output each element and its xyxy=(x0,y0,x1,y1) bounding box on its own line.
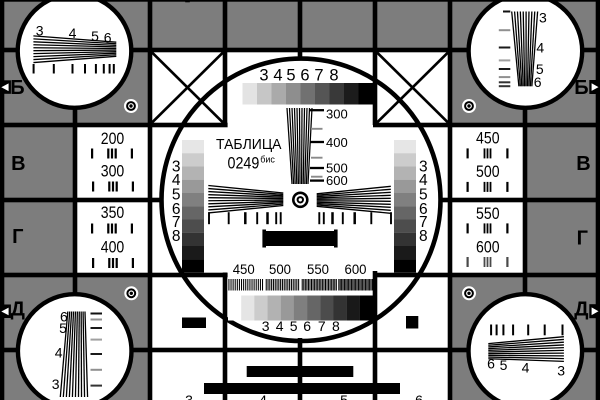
svg-text:бис: бис xyxy=(260,154,275,164)
svg-text:3: 3 xyxy=(52,376,60,392)
svg-text:Д: Д xyxy=(11,299,25,321)
svg-text:Б: Б xyxy=(10,77,24,99)
svg-text:6: 6 xyxy=(415,392,423,400)
svg-text:Д: Д xyxy=(574,299,588,321)
svg-text:350: 350 xyxy=(101,204,125,222)
svg-text:3: 3 xyxy=(185,392,193,400)
svg-text:0249: 0249 xyxy=(228,154,260,172)
svg-text:В: В xyxy=(11,153,25,175)
svg-text:Г: Г xyxy=(12,226,23,248)
svg-text:3: 3 xyxy=(557,362,565,378)
svg-text:4: 4 xyxy=(259,392,267,400)
svg-text:6: 6 xyxy=(300,67,309,85)
svg-text:3: 3 xyxy=(539,9,547,25)
svg-text:8: 8 xyxy=(419,228,428,245)
svg-text:Б: Б xyxy=(574,77,588,99)
svg-text:400: 400 xyxy=(326,135,348,150)
svg-text:550: 550 xyxy=(307,262,329,278)
svg-text:450: 450 xyxy=(233,262,255,278)
svg-text:7: 7 xyxy=(314,67,323,85)
svg-text:300: 300 xyxy=(326,106,348,121)
svg-text:8: 8 xyxy=(329,67,338,85)
svg-text:4: 4 xyxy=(273,67,282,85)
svg-text:500: 500 xyxy=(476,163,500,181)
svg-text:300: 300 xyxy=(101,163,125,181)
svg-text:450: 450 xyxy=(476,130,500,148)
svg-text:6: 6 xyxy=(303,318,311,334)
svg-text:600: 600 xyxy=(476,238,500,256)
svg-text:3: 3 xyxy=(259,67,268,85)
svg-text:7: 7 xyxy=(318,318,326,334)
svg-text:5: 5 xyxy=(340,392,348,400)
svg-text:5: 5 xyxy=(286,67,295,85)
svg-text:В: В xyxy=(576,153,590,175)
svg-text:6: 6 xyxy=(534,74,542,90)
svg-text:4: 4 xyxy=(276,318,284,334)
svg-text:500: 500 xyxy=(269,262,291,278)
svg-text:550: 550 xyxy=(476,205,500,223)
svg-text:5: 5 xyxy=(290,318,298,334)
svg-text:4: 4 xyxy=(536,40,544,56)
svg-text:600: 600 xyxy=(326,173,348,188)
svg-text:600: 600 xyxy=(345,262,367,278)
svg-text:8: 8 xyxy=(172,228,181,245)
svg-text:Г: Г xyxy=(577,227,588,249)
svg-text:8: 8 xyxy=(332,318,340,334)
svg-text:200: 200 xyxy=(101,130,125,148)
svg-text:4: 4 xyxy=(55,345,63,361)
svg-text:400: 400 xyxy=(101,239,125,257)
svg-text:ТАБЛИЦА: ТАБЛИЦА xyxy=(216,136,282,153)
svg-text:6: 6 xyxy=(487,356,495,372)
svg-text:3: 3 xyxy=(262,318,270,334)
svg-text:4: 4 xyxy=(522,360,530,376)
